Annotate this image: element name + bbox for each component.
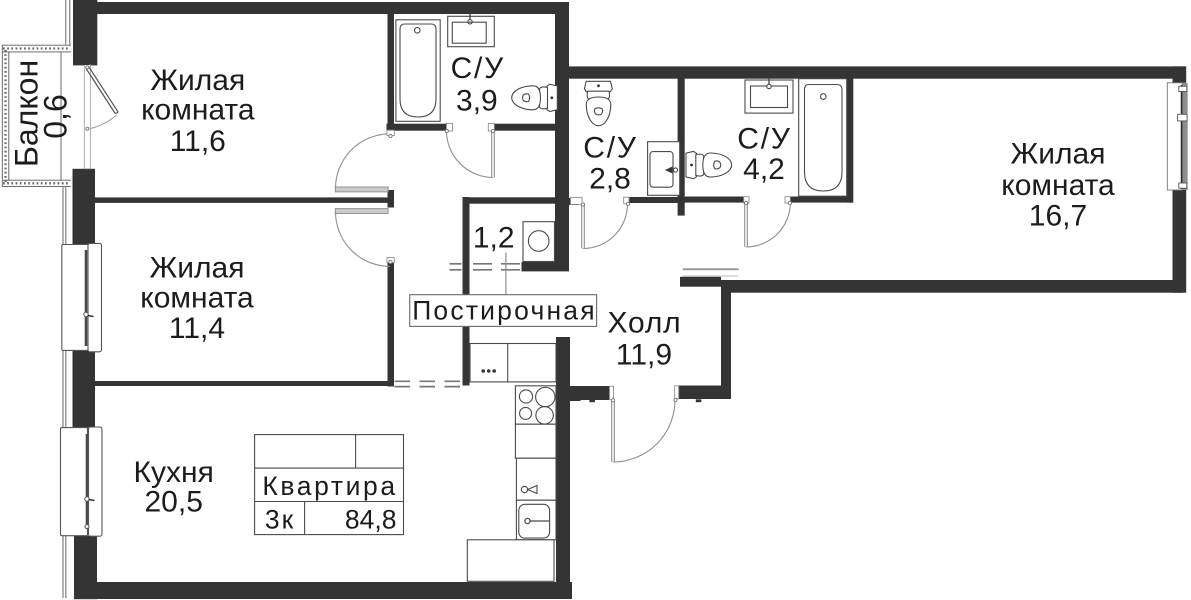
svg-text:0,6: 0,6 [38,94,74,138]
svg-text:2,8: 2,8 [589,162,631,195]
svg-text:С/У: С/У [737,123,791,156]
svg-text:Холл: Холл [608,306,682,339]
svg-text:Кухня: Кухня [134,456,214,489]
svg-text:3к: 3к [265,504,295,534]
svg-text:комната: комната [141,94,255,127]
svg-text:20,5: 20,5 [145,486,203,519]
svg-text:комната: комната [140,281,254,314]
svg-text:Постирочная: Постирочная [412,296,597,326]
svg-text:11,9: 11,9 [616,339,672,372]
svg-text:11,6: 11,6 [170,125,226,158]
svg-text:С/У: С/У [583,131,637,164]
svg-text:1,2: 1,2 [473,222,515,255]
svg-text:Жилая: Жилая [1011,137,1106,170]
svg-text:комната: комната [1001,169,1115,202]
svg-text:3,9: 3,9 [456,85,498,118]
svg-text:84,8: 84,8 [345,504,397,534]
svg-text:Жилая: Жилая [150,251,245,284]
svg-text:Квартира: Квартира [262,471,397,501]
svg-text:16,7: 16,7 [1029,199,1087,232]
svg-text:4,2: 4,2 [743,153,785,186]
svg-text:11,4: 11,4 [169,312,225,345]
svg-text:Жилая: Жилая [150,64,245,97]
svg-text:С/У: С/У [451,52,505,85]
